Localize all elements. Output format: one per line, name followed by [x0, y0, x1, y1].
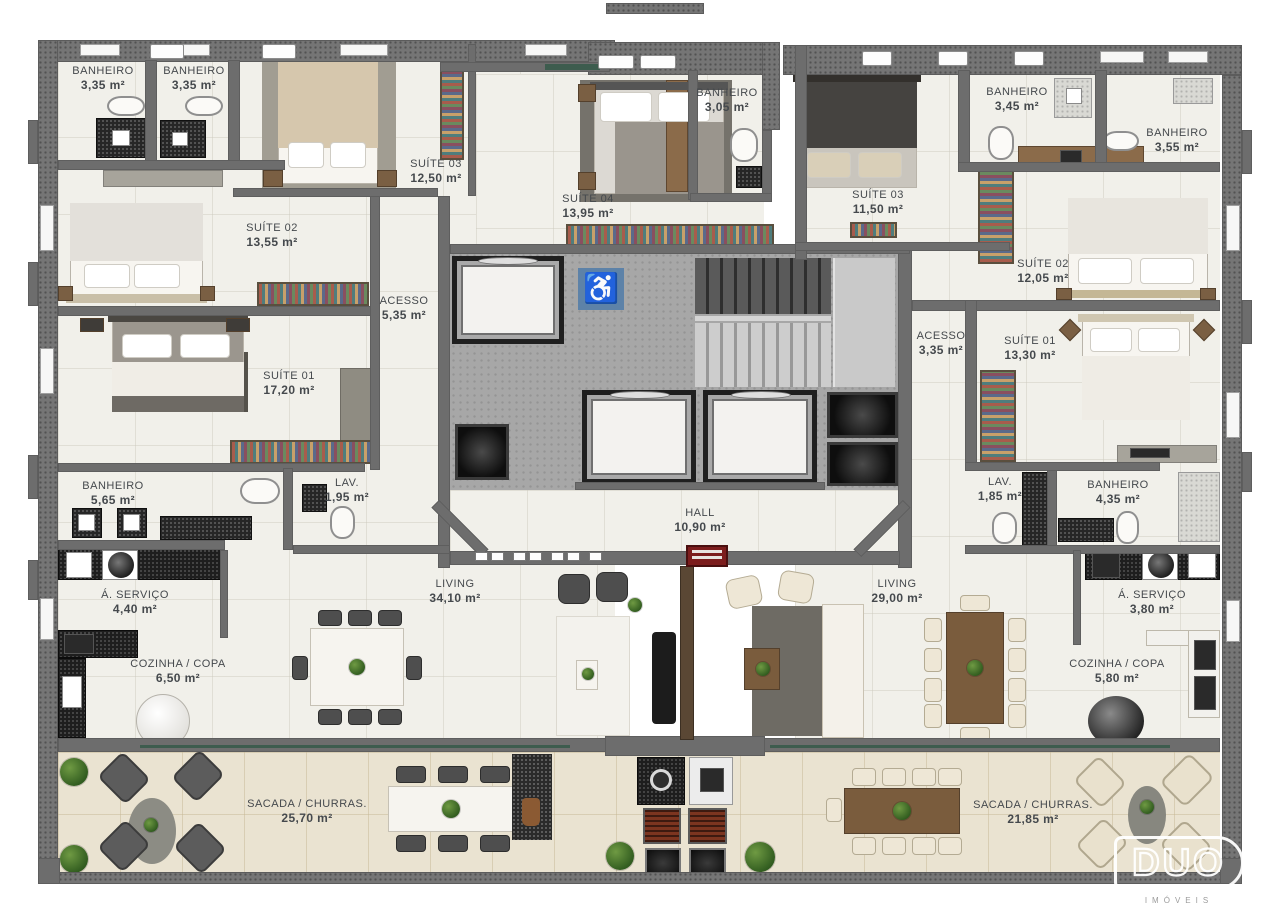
plant: [60, 845, 88, 873]
room-area: 13,95 m²: [562, 206, 614, 222]
plant: [745, 842, 775, 872]
elevator-door: [731, 391, 791, 399]
blanket: [70, 203, 203, 261]
room-area: 11,50 m²: [852, 202, 904, 218]
vanity: [736, 166, 762, 188]
room-name: BANHEIRO: [1146, 127, 1207, 139]
room-label: SUÍTE 0312,50 m²: [410, 157, 462, 187]
wall: [233, 188, 438, 197]
pillar: [28, 560, 38, 600]
ac-unit: [640, 55, 676, 69]
pillar: [38, 858, 60, 884]
room-label: BANHEIRO3,35 m²: [72, 64, 133, 94]
mailbox: [567, 552, 580, 561]
wardrobe: [850, 222, 897, 238]
headboard: [1078, 314, 1194, 322]
grill: [643, 808, 681, 844]
room-name: SUÍTE 01: [1004, 335, 1056, 347]
room-area: 13,55 m²: [246, 235, 298, 251]
mailbox: [491, 552, 504, 561]
centerpiece-plant: [349, 659, 365, 675]
chair: [924, 678, 942, 702]
stairs-lower-flight: [695, 323, 831, 387]
pillow: [1078, 258, 1132, 284]
chair: [882, 837, 906, 855]
chair: [396, 835, 426, 852]
chair: [348, 610, 372, 626]
room-name: Á. SERVIÇO: [1118, 589, 1186, 601]
vanity: [1058, 518, 1114, 542]
room-area: 34,10 m²: [429, 591, 480, 607]
room-label: LIVING29,00 m²: [871, 577, 922, 607]
room-label: COZINHA / COPA6,50 m²: [130, 657, 225, 687]
room-area: 3,35 m²: [917, 343, 966, 359]
window: [40, 598, 54, 640]
room-name: BANHEIRO: [1087, 479, 1148, 491]
plant: [144, 818, 158, 832]
wall-under-elevators: [575, 482, 825, 490]
wheelchair-accessible-icon: ♿: [578, 268, 624, 310]
toilet: [992, 512, 1017, 544]
window: [80, 44, 120, 56]
sink: [62, 676, 82, 708]
room-area: 3,80 m²: [1118, 602, 1186, 618]
fire-box: [700, 768, 724, 792]
room-label: BANHEIRO4,35 m²: [1087, 478, 1148, 508]
plant: [60, 758, 88, 786]
room-label: SUÍTE 0413,95 m²: [562, 192, 614, 222]
room-name: COZINHA / COPA: [130, 658, 225, 670]
cabinet: [1092, 552, 1120, 578]
wall: [283, 468, 293, 550]
chair: [438, 835, 468, 852]
elevator-shaft: [827, 442, 898, 486]
wall: [58, 540, 225, 550]
plant: [756, 662, 770, 676]
room-area: 17,20 m²: [263, 383, 315, 399]
shower: [1178, 472, 1220, 542]
room-label: BANHEIRO3,05 m²: [696, 86, 757, 116]
room-name: SUÍTE 02: [246, 222, 298, 234]
dresser: [103, 170, 223, 187]
room-name: COZINHA / COPA: [1069, 658, 1164, 670]
room-label: BANHEIRO3,35 m²: [163, 64, 224, 94]
wall: [958, 162, 1220, 172]
window-glass: [140, 745, 570, 748]
ac-unit: [938, 51, 968, 66]
stair-handrail: [695, 316, 831, 321]
blanket: [278, 62, 378, 148]
toilet: [730, 128, 758, 162]
window: [40, 348, 54, 394]
room-label: BANHEIRO3,55 m²: [1146, 126, 1207, 156]
armchair: [596, 572, 628, 602]
room-area: 3,45 m²: [986, 99, 1047, 115]
ac-unit: [598, 55, 634, 69]
nightstand: [1056, 288, 1072, 300]
chair: [882, 768, 906, 786]
pillow: [180, 334, 230, 358]
vanity: [302, 484, 327, 512]
headboard: [793, 74, 921, 82]
chair: [438, 766, 468, 783]
wardrobe: [257, 282, 369, 306]
pillar: [1242, 300, 1252, 344]
room-label: SUÍTE 0117,20 m²: [263, 369, 315, 399]
pillow: [288, 142, 324, 168]
granite-counter: [512, 754, 552, 840]
chair: [1008, 618, 1026, 642]
bbq-sink: [650, 769, 672, 791]
wall: [965, 300, 977, 467]
laundry-sink: [66, 552, 92, 578]
chair: [852, 837, 876, 855]
chair: [378, 709, 402, 725]
chair: [1008, 678, 1026, 702]
window: [1226, 205, 1240, 251]
room-area: 6,50 m²: [130, 671, 225, 687]
pillow: [858, 152, 902, 178]
room-name: SACADA / CHURRAS.: [973, 799, 1093, 811]
wall: [965, 545, 1220, 554]
wall: [795, 242, 1010, 251]
vanity: [1022, 472, 1050, 548]
room-name: BANHEIRO: [696, 87, 757, 99]
room-name: LIVING: [877, 578, 916, 590]
grill: [688, 808, 727, 844]
plant: [1140, 800, 1154, 814]
room-name: LAV.: [335, 477, 359, 489]
room-area: 5,80 m²: [1069, 671, 1164, 687]
vanity: [1173, 78, 1213, 104]
pillar: [28, 455, 38, 499]
wall: [898, 244, 912, 568]
room-name: BANHEIRO: [72, 65, 133, 77]
toilet: [1116, 511, 1139, 544]
chair: [938, 768, 962, 786]
elevator: [703, 390, 817, 484]
room-name: HALL: [685, 507, 715, 519]
chair: [938, 837, 962, 855]
room-name: SUÍTE 02: [1017, 258, 1069, 270]
pillar: [28, 262, 38, 306]
laundry-sink: [1188, 552, 1216, 578]
room-name: ACESSO: [917, 330, 966, 342]
chair: [852, 768, 876, 786]
wall: [145, 60, 157, 165]
room-area: 1,95 m²: [325, 490, 369, 506]
chair: [924, 618, 942, 642]
vanity: [160, 516, 252, 540]
window: [1168, 51, 1208, 63]
mailbox: [551, 552, 564, 561]
chair: [1008, 704, 1026, 728]
tv: [1130, 448, 1170, 458]
washer-drum: [1148, 552, 1174, 578]
chair: [912, 768, 936, 786]
chair: [826, 798, 842, 822]
nightstand: [1200, 288, 1216, 300]
blanket: [112, 362, 244, 396]
plant: [582, 668, 594, 680]
wall-left: [38, 40, 58, 884]
nightstand: [226, 318, 250, 332]
room-name: BANHEIRO: [163, 65, 224, 77]
sink: [1066, 88, 1082, 104]
chair: [924, 648, 942, 672]
wall: [762, 130, 772, 202]
wardrobe: [230, 440, 376, 464]
sink: [172, 132, 188, 146]
chair: [348, 709, 372, 725]
ac-unit: [262, 44, 296, 59]
window-glass: [770, 745, 1170, 748]
wall: [220, 550, 228, 638]
pillow: [134, 264, 180, 288]
wall-right: [1222, 75, 1242, 884]
wall: [370, 196, 380, 470]
window: [1226, 600, 1240, 642]
stairs-upper-flight: [695, 258, 831, 314]
side-table: [578, 84, 596, 102]
hall-door: [686, 545, 728, 567]
room-area: 12,05 m²: [1017, 271, 1069, 287]
pillow: [1138, 328, 1180, 352]
stove: [1194, 640, 1216, 670]
room-area: 12,50 m²: [410, 171, 462, 187]
wall: [965, 462, 1160, 471]
wall: [1073, 550, 1081, 645]
pillow: [1140, 258, 1194, 284]
toilet: [330, 506, 355, 539]
mailbox: [529, 552, 542, 561]
room-name: LAV.: [988, 476, 1012, 488]
pillar: [1242, 130, 1252, 174]
room-name: SACADA / CHURRAS.: [247, 798, 367, 810]
room-label: Á. SERVIÇO3,80 m²: [1118, 588, 1186, 618]
mailbox: [475, 552, 488, 561]
nightstand: [58, 286, 73, 301]
room-name: LIVING: [435, 578, 474, 590]
wall-hall-bottom: [727, 551, 900, 565]
room-label: SUÍTE 0311,50 m²: [852, 188, 904, 218]
room-label: SUÍTE 0213,55 m²: [246, 221, 298, 251]
wall: [958, 70, 970, 170]
headboard: [66, 294, 207, 303]
ac-unit: [862, 51, 892, 66]
nightstand: [200, 286, 215, 301]
room-area: 4,40 m²: [101, 602, 169, 618]
wall: [58, 463, 365, 472]
mailbox: [513, 552, 526, 561]
cutting-board: [522, 798, 540, 826]
sofa: [652, 632, 676, 724]
pillow: [84, 264, 130, 288]
chair: [318, 610, 342, 626]
wheelchair-symbol: ♿: [583, 273, 619, 305]
room-label: HALL10,90 m²: [674, 506, 725, 536]
room-label: BANHEIRO3,45 m²: [986, 85, 1047, 115]
toilet: [240, 478, 280, 504]
pillow: [807, 152, 851, 178]
toilet: [107, 96, 145, 116]
blanket: [1068, 198, 1208, 254]
nightstand: [263, 170, 283, 187]
elevator-shaft: [455, 424, 509, 480]
wall: [912, 300, 1220, 311]
chair: [396, 766, 426, 783]
centerpiece-plant: [967, 660, 983, 676]
room-label: SUÍTE 0212,05 m²: [1017, 257, 1069, 287]
room-area: 29,00 m²: [871, 591, 922, 607]
chair: [1008, 648, 1026, 672]
blanket: [112, 396, 244, 412]
blanket: [797, 78, 917, 148]
wall: [293, 545, 450, 554]
nightstand: [80, 318, 104, 332]
brand-logo-text: DUO: [1132, 844, 1225, 882]
pillow: [1090, 328, 1132, 352]
room-label: SUÍTE 0113,30 m²: [1004, 334, 1056, 364]
room-label: SACADA / CHURRAS.25,70 m²: [247, 797, 367, 827]
room-area: 3,35 m²: [72, 78, 133, 94]
window: [340, 44, 388, 56]
chair: [292, 656, 308, 680]
sink: [112, 130, 130, 146]
pillar: [28, 120, 38, 164]
stove: [64, 634, 94, 654]
room-label: ACESSO5,35 m²: [380, 294, 429, 324]
mailbox: [589, 552, 602, 561]
chair: [378, 610, 402, 626]
room-area: 3,35 m²: [163, 78, 224, 94]
headboard: [1064, 290, 1212, 298]
balcony-rail: [38, 872, 1242, 884]
brand-logo: DUO: [1114, 836, 1244, 890]
armchair: [558, 574, 590, 604]
floor-plan: ♿: [0, 0, 1280, 920]
room-name: SUÍTE 03: [852, 189, 904, 201]
ac-unit: [150, 44, 184, 59]
chair: [406, 656, 422, 680]
room-label: LAV.1,85 m²: [978, 475, 1022, 505]
room-label: SACADA / CHURRAS.21,85 m²: [973, 798, 1093, 828]
room-label: COZINHA / COPA5,80 m²: [1069, 657, 1164, 687]
chair: [912, 837, 936, 855]
chair: [480, 835, 510, 852]
wall: [1047, 470, 1057, 550]
ac-unit: [1014, 51, 1044, 66]
window: [40, 205, 54, 251]
room-area: 3,55 m²: [1146, 140, 1207, 156]
room-label: BANHEIRO5,65 m²: [82, 479, 143, 509]
wall: [690, 193, 772, 202]
pillow: [122, 334, 172, 358]
room-name: BANHEIRO: [986, 86, 1047, 98]
elevator: [452, 256, 564, 344]
room-area: 4,35 m²: [1087, 492, 1148, 508]
window: [1100, 51, 1144, 63]
room-area: 5,35 m²: [380, 308, 429, 324]
room-area: 10,90 m²: [674, 520, 725, 536]
chair: [924, 704, 942, 728]
room-label: ACESSO3,35 m²: [917, 329, 966, 359]
wall-center-divider: [762, 42, 780, 130]
room-label: Á. SERVIÇO4,40 m²: [101, 588, 169, 618]
room-area: 1,85 m²: [978, 489, 1022, 505]
armchair: [724, 574, 763, 610]
toilet: [988, 126, 1014, 160]
toilet: [1103, 131, 1139, 151]
room-name: BANHEIRO: [82, 480, 143, 492]
elevator: [582, 390, 696, 484]
room-area: 3,05 m²: [696, 100, 757, 116]
elevator-shaft: [827, 392, 898, 438]
wall: [58, 160, 285, 170]
plant: [628, 598, 642, 612]
sink: [78, 514, 95, 531]
tv-panel: [680, 566, 694, 740]
room-area: 5,65 m²: [82, 493, 143, 509]
room-area: 21,85 m²: [973, 812, 1093, 828]
room-name: ACESSO: [380, 295, 429, 307]
window: [525, 44, 567, 56]
chair: [480, 766, 510, 783]
parapet: [606, 3, 704, 14]
room-area: 25,70 m²: [247, 811, 367, 827]
toilet: [185, 96, 223, 116]
room-name: SUÍTE 04: [562, 193, 614, 205]
window: [1226, 392, 1240, 438]
pillow: [330, 142, 366, 168]
room-name: SUÍTE 01: [263, 370, 315, 382]
chair: [960, 595, 990, 611]
side-table: [578, 172, 596, 190]
stair-landing: [833, 258, 895, 387]
room-name: SUÍTE 03: [410, 158, 462, 170]
oven: [1194, 676, 1216, 710]
armchair: [777, 569, 816, 604]
chair: [318, 709, 342, 725]
pillow: [600, 92, 652, 122]
wall: [1095, 70, 1107, 170]
washer-drum: [108, 552, 134, 578]
window-glass: [545, 64, 600, 70]
room-area: 13,30 m²: [1004, 348, 1056, 364]
brand-tagline: IMÓVEIS: [1104, 896, 1254, 905]
room-label: LIVING34,10 m²: [429, 577, 480, 607]
wall: [228, 60, 240, 165]
centerpiece-plant: [893, 802, 911, 820]
elevator-door: [610, 391, 670, 399]
blanket: [1082, 356, 1190, 420]
pillar: [1242, 452, 1252, 492]
sofa: [822, 604, 864, 738]
wall: [795, 45, 807, 260]
counter: [1146, 630, 1190, 646]
wardrobe: [980, 370, 1016, 462]
wall: [58, 306, 376, 316]
plant: [606, 842, 634, 870]
room-label: LAV.1,95 m²: [325, 476, 369, 506]
centerpiece-plant: [442, 800, 460, 818]
nightstand: [377, 170, 397, 187]
elevator-door: [478, 257, 538, 265]
sink: [123, 514, 140, 531]
room-name: Á. SERVIÇO: [101, 589, 169, 601]
